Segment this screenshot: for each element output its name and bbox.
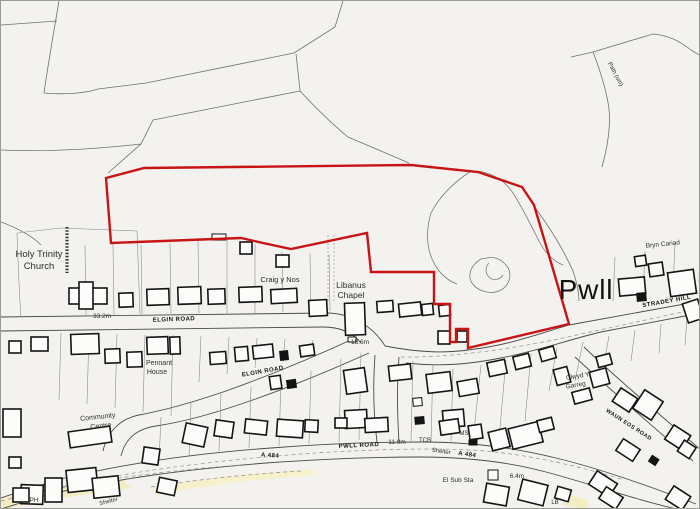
building bbox=[309, 300, 328, 317]
building bbox=[71, 334, 100, 355]
building bbox=[9, 457, 21, 468]
label-libanus-chapel: Libanus bbox=[336, 280, 366, 290]
label-holy-trinity-church: Holy Trinity bbox=[16, 249, 63, 260]
map-canvas: Holy Trinity Church Craig y Nos Libanus … bbox=[0, 0, 700, 509]
building bbox=[142, 447, 160, 465]
building bbox=[634, 255, 646, 266]
building bbox=[178, 287, 202, 305]
building bbox=[439, 419, 460, 436]
spot-height-18-6m: 18.6m bbox=[351, 339, 369, 346]
spot-height-6-4m: 6.4m bbox=[510, 473, 524, 480]
building bbox=[667, 269, 696, 296]
building-bryn-cariad bbox=[648, 262, 664, 277]
label-pennant-house-line2: House bbox=[147, 369, 167, 376]
building bbox=[299, 344, 314, 357]
building bbox=[31, 337, 48, 351]
building bbox=[589, 368, 610, 388]
feature-label-ph: PH bbox=[29, 497, 38, 504]
building bbox=[271, 288, 298, 303]
building bbox=[335, 418, 347, 428]
building bbox=[415, 417, 425, 425]
building bbox=[343, 368, 367, 395]
building bbox=[147, 289, 170, 306]
building bbox=[234, 346, 248, 361]
building bbox=[276, 255, 289, 267]
building bbox=[537, 417, 554, 432]
building bbox=[240, 242, 252, 254]
building-libanus-chapel bbox=[344, 303, 365, 336]
building bbox=[468, 424, 483, 440]
label-libanus-chapel-line2: Chapel bbox=[338, 290, 365, 300]
building bbox=[119, 293, 133, 307]
building bbox=[276, 419, 303, 438]
building bbox=[105, 349, 120, 364]
building bbox=[483, 483, 509, 506]
building bbox=[413, 398, 423, 407]
label-pwll-settlement: Pwll bbox=[559, 274, 614, 305]
building bbox=[488, 428, 510, 451]
building bbox=[637, 293, 647, 302]
feature-label-ms: MS bbox=[460, 431, 469, 437]
label-pennant-house: Pennant bbox=[146, 360, 172, 367]
building bbox=[252, 344, 273, 359]
building bbox=[398, 302, 421, 317]
label-craig-y-nos: Craig y Nos bbox=[260, 275, 299, 284]
feature-label-tcb: TCB bbox=[419, 438, 431, 444]
building bbox=[426, 372, 452, 394]
spot-height-33-2m: 33.2m bbox=[93, 313, 111, 320]
road-label-a484-west: A 484 bbox=[261, 452, 280, 459]
building bbox=[269, 375, 282, 389]
building bbox=[286, 379, 296, 388]
building bbox=[239, 287, 263, 303]
building-church-transept bbox=[79, 282, 93, 309]
feature-label-el-sub-sta: El Sub Sta bbox=[443, 477, 474, 484]
building bbox=[377, 300, 394, 312]
building bbox=[92, 476, 120, 499]
building bbox=[305, 420, 319, 433]
site-plan-map: Holy Trinity Church Craig y Nos Libanus … bbox=[1, 1, 700, 509]
building bbox=[280, 351, 289, 361]
building bbox=[127, 352, 143, 368]
building bbox=[9, 341, 21, 353]
building bbox=[422, 303, 434, 315]
building-in-boundary-notch bbox=[457, 331, 467, 342]
feature-label-lb: LB bbox=[551, 500, 558, 506]
building bbox=[13, 488, 29, 502]
building bbox=[487, 359, 508, 376]
building bbox=[210, 351, 227, 364]
building bbox=[214, 420, 234, 438]
building bbox=[438, 331, 450, 344]
spot-height-11-9m: 11.9m bbox=[388, 439, 406, 446]
building bbox=[170, 337, 181, 354]
building bbox=[388, 364, 411, 381]
building-pennant-house bbox=[147, 337, 169, 355]
label-holy-trinity-church-line2: Church bbox=[24, 261, 55, 272]
building bbox=[365, 417, 389, 432]
milestone-mark bbox=[469, 440, 477, 445]
building bbox=[3, 409, 21, 437]
building bbox=[182, 423, 208, 447]
building bbox=[439, 304, 451, 316]
building bbox=[157, 477, 178, 495]
building bbox=[513, 353, 532, 369]
building bbox=[208, 289, 226, 305]
building bbox=[457, 378, 479, 396]
building bbox=[488, 470, 498, 480]
building bbox=[45, 478, 62, 502]
building bbox=[244, 419, 267, 435]
